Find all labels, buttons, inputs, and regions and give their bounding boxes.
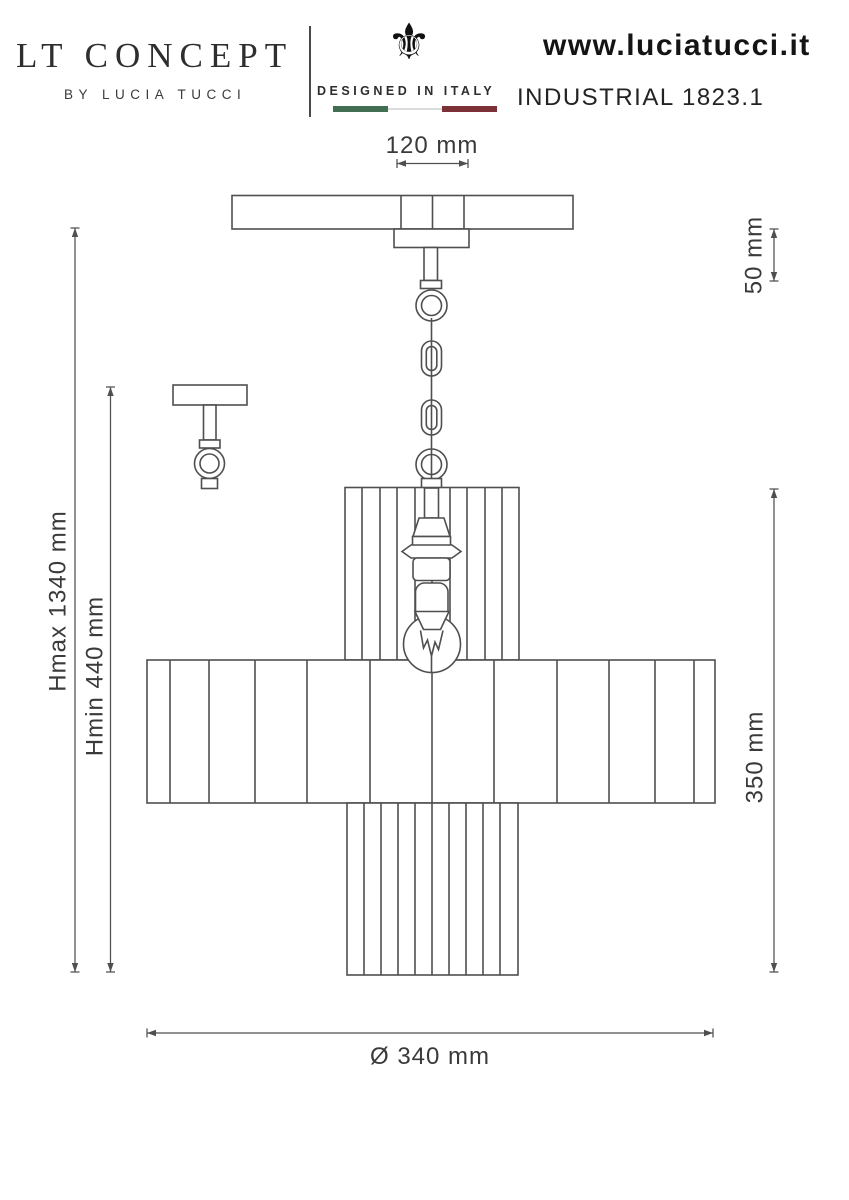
short-canopy: [173, 385, 247, 405]
dim-height-max-label: Hmax 1340 mm: [44, 510, 71, 691]
canopy-collar: [421, 281, 442, 289]
dim-canopy-width-label: 120 mm: [386, 132, 479, 159]
suspension-assembly: [394, 229, 469, 488]
short-hook: [202, 479, 218, 489]
dim-diameter-label: Ø 340 mm: [370, 1043, 490, 1070]
ceiling-hatch: [232, 196, 573, 230]
socket-shoulder: [413, 518, 450, 537]
short-mount-detail: [173, 385, 247, 489]
socket-stem: [425, 488, 439, 518]
dim-canopy-drop-label: 50 mm: [740, 216, 767, 294]
shade-collar: [422, 479, 442, 489]
short-stem: [204, 405, 217, 440]
socket-flange: [402, 545, 461, 558]
technical-drawing: 120 mm 50 mm Hmax 1340 mm Hmin 440 mm 35…: [0, 0, 849, 1200]
shade-middle-tier: [147, 660, 715, 803]
top-ring-inner: [422, 296, 442, 316]
short-collar: [200, 440, 221, 448]
dim-height-min-label: Hmin 440 mm: [81, 596, 108, 756]
short-ring-inner: [200, 454, 219, 473]
dim-shade-height-label: 350 mm: [741, 711, 768, 804]
socket-body: [413, 558, 450, 581]
canopy: [394, 229, 469, 248]
spec-sheet-page: LT CONCEPT BY LUCIA TUCCI ⚜ DESIGNED IN …: [0, 0, 849, 1200]
canopy-stem: [424, 248, 438, 281]
